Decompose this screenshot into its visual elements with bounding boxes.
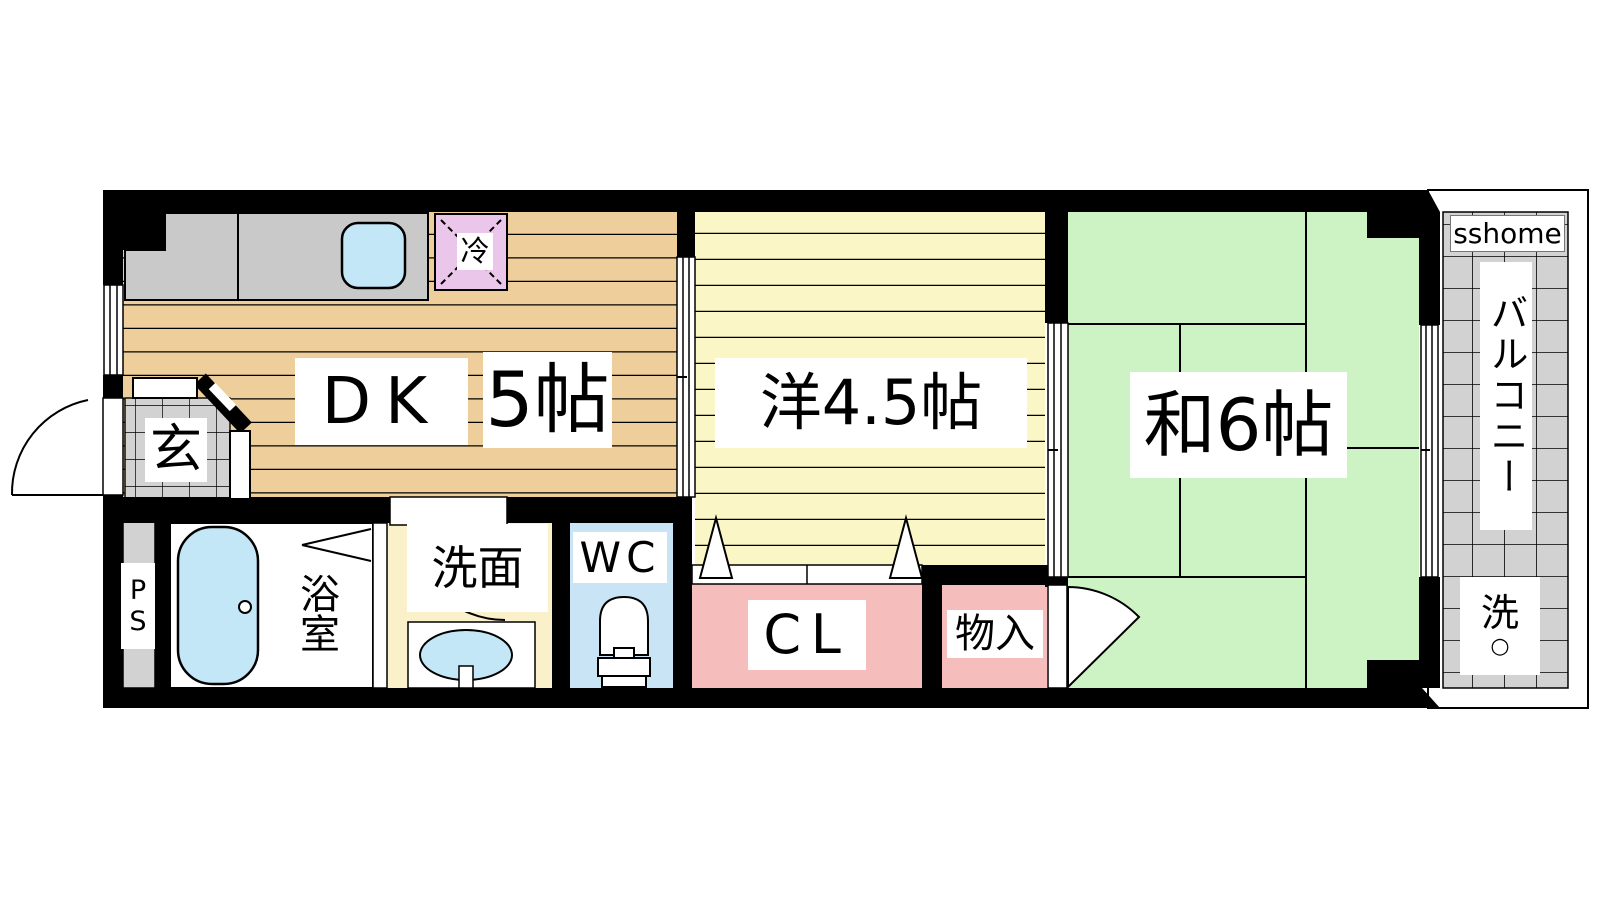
watermark: sshome — [1450, 215, 1565, 252]
washer-label: 洗 — [1481, 594, 1519, 632]
washer-mark: ○ — [1490, 636, 1509, 658]
refrigerator-label: 冷 — [457, 233, 493, 270]
entrance-door — [12, 398, 123, 495]
western-room-label: 洋4.5帖 — [715, 358, 1027, 448]
sliding-door-balcony — [1421, 325, 1438, 577]
storage-door-strip — [1048, 585, 1067, 688]
japanese-room-label: 和6帖 — [1130, 372, 1347, 478]
wall-bottom — [103, 688, 1440, 708]
bathroom-label: 浴室 — [290, 560, 342, 666]
entrance-label: 玄 — [145, 418, 207, 482]
floor-plan: DK 5帖 洋4.5帖 和6帖 玄 PS 浴室 洗面 WC CL 物入 バルコニ… — [0, 0, 1600, 900]
dk-label: DK — [295, 358, 468, 445]
washroom-label: 洗面 — [407, 524, 548, 612]
closet-label: CL — [748, 600, 866, 670]
wall-pillar — [1367, 660, 1422, 688]
pipe-space-label: PS — [121, 563, 155, 649]
kitchen-sink — [342, 223, 405, 288]
sliding-door-western-japanese — [1048, 323, 1068, 577]
wall-step-block — [1367, 212, 1420, 238]
toilet — [598, 597, 650, 687]
window-left — [104, 285, 123, 375]
balcony-label: バルコニー — [1480, 262, 1532, 530]
kitchen — [125, 213, 507, 300]
wall-top — [103, 190, 1440, 212]
storage-label: 物入 — [947, 610, 1043, 658]
washroom-sink — [408, 622, 535, 688]
washer-space: 洗 ○ — [1460, 577, 1540, 675]
sliding-door-dk-western — [677, 257, 695, 497]
bathtub — [178, 527, 258, 684]
dk-size-label: 5帖 — [483, 352, 612, 448]
floor-plan-drawing — [0, 0, 1600, 900]
wc-label: WC — [573, 532, 667, 583]
